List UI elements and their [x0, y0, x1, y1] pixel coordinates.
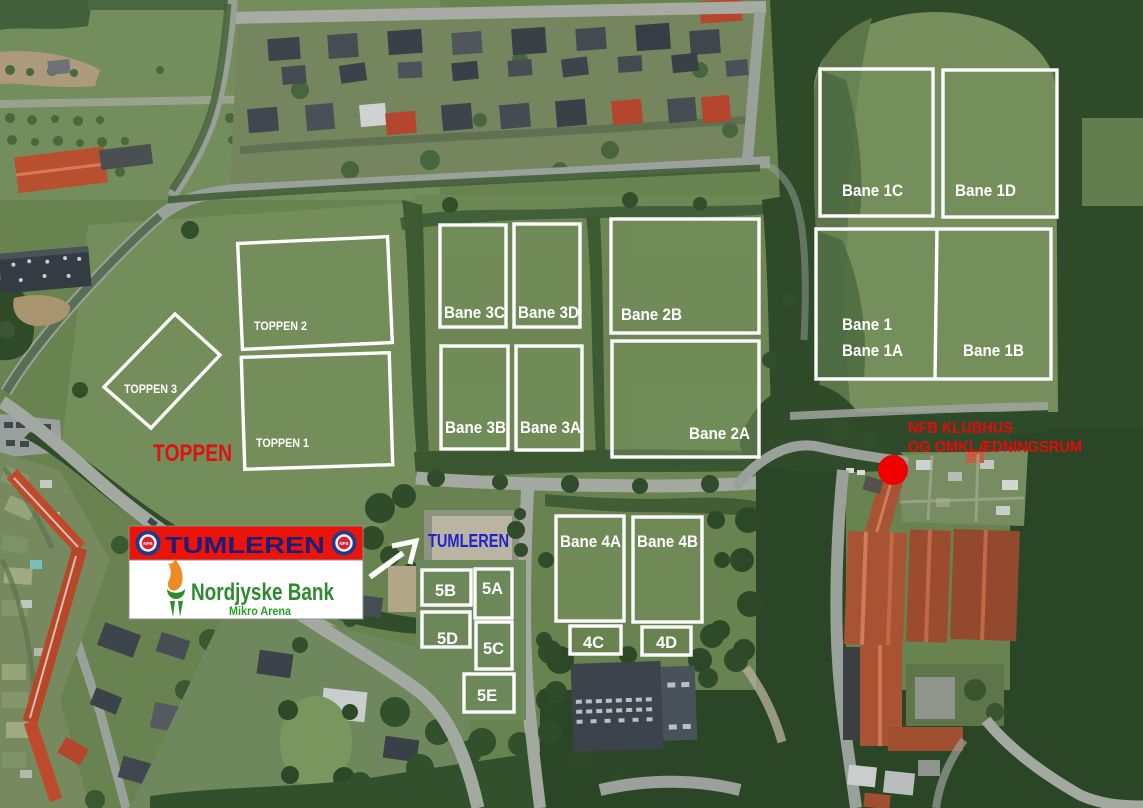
- svg-text:4C: 4C: [583, 634, 604, 652]
- svg-text:5D: 5D: [437, 630, 458, 648]
- svg-text:TUMLEREN: TUMLEREN: [165, 532, 325, 558]
- svg-text:4D: 4D: [656, 634, 677, 652]
- svg-text:Bane 1D: Bane 1D: [955, 182, 1016, 200]
- svg-text:5A: 5A: [482, 580, 503, 598]
- svg-text:Bane 3A: Bane 3A: [520, 419, 581, 437]
- svg-text:NFB: NFB: [339, 541, 349, 546]
- svg-text:TOPPEN: TOPPEN: [153, 440, 232, 467]
- svg-text:5B: 5B: [435, 582, 456, 600]
- svg-text:Bane 1B: Bane 1B: [963, 342, 1024, 360]
- svg-text:Bane 2A: Bane 2A: [689, 425, 750, 443]
- svg-text:NFB KLUBHUS: NFB KLUBHUS: [908, 420, 1013, 437]
- svg-text:Bane 3D: Bane 3D: [518, 304, 579, 322]
- svg-text:TOPPEN 2: TOPPEN 2: [254, 319, 307, 333]
- svg-text:TOPPEN 1: TOPPEN 1: [256, 436, 309, 450]
- svg-text:Bane 3B: Bane 3B: [445, 419, 506, 437]
- svg-text:Bane 1C: Bane 1C: [842, 182, 903, 200]
- svg-text:Bane 2B: Bane 2B: [621, 306, 682, 324]
- svg-text:Bane 1A: Bane 1A: [842, 342, 903, 360]
- svg-text:TUMLEREN: TUMLEREN: [428, 531, 509, 551]
- svg-text:OG OMKLÆDNINGSRUM: OG OMKLÆDNINGSRUM: [908, 439, 1082, 456]
- svg-text:Bane 1: Bane 1: [842, 316, 892, 334]
- svg-text:Bane 4A: Bane 4A: [560, 533, 621, 551]
- svg-text:Bane 4B: Bane 4B: [637, 533, 698, 551]
- svg-text:TOPPEN 3: TOPPEN 3: [124, 382, 177, 396]
- svg-text:NFB: NFB: [143, 541, 153, 546]
- svg-text:Mikro Arena: Mikro Arena: [229, 604, 291, 618]
- svg-text:Bane 3C: Bane 3C: [444, 304, 505, 322]
- svg-text:5E: 5E: [477, 687, 497, 705]
- svg-text:5C: 5C: [483, 640, 504, 658]
- svg-text:Nordjyske Bank: Nordjyske Bank: [191, 579, 335, 606]
